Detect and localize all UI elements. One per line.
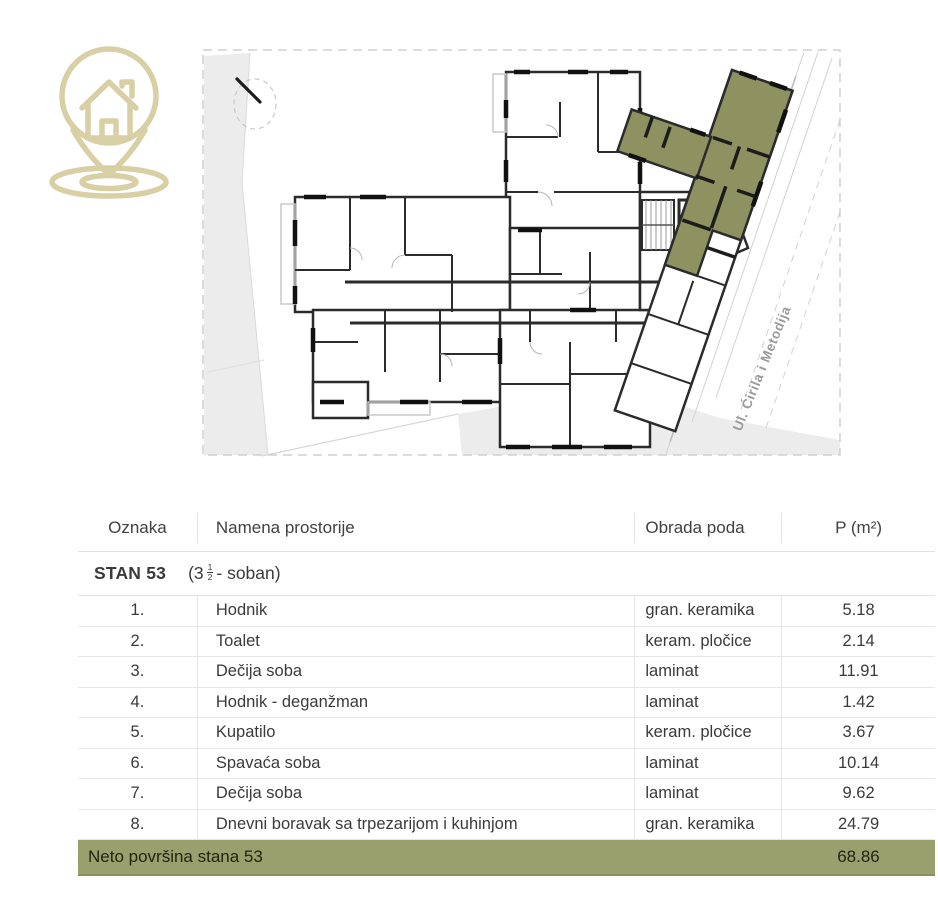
table-body: 1. Hodnik gran. keramika 5.18 2. Toalet … bbox=[78, 596, 935, 840]
staircase bbox=[642, 200, 674, 250]
room-name: Hodnik - deganžman bbox=[197, 688, 635, 718]
floor-plan: Ul. Ćirila i Metodija bbox=[200, 42, 845, 467]
row-number: 5. bbox=[78, 718, 197, 748]
room-table: Oznaka Namena prostorije Obrada poda P (… bbox=[78, 505, 935, 876]
table-row: 6. Spavaća soba laminat 10.14 bbox=[78, 749, 935, 780]
floor-finish: laminat bbox=[634, 779, 781, 809]
room-count-post: - soban) bbox=[216, 563, 280, 584]
header-oznaka: Oznaka bbox=[78, 513, 197, 543]
row-number: 4. bbox=[78, 688, 197, 718]
room-name: Dečija soba bbox=[197, 657, 635, 687]
row-number: 2. bbox=[78, 627, 197, 657]
room-area: 11.91 bbox=[781, 657, 935, 687]
room-name: Hodnik bbox=[197, 596, 635, 626]
fraction-denominator: 2 bbox=[207, 573, 214, 582]
room-area: 10.14 bbox=[781, 749, 935, 779]
table-row: 8. Dnevni boravak sa trpezarijom i kuhin… bbox=[78, 810, 935, 841]
room-name: Dnevni boravak sa trpezarijom i kuhinjom bbox=[197, 810, 635, 840]
floor-finish: laminat bbox=[634, 688, 781, 718]
row-number: 6. bbox=[78, 749, 197, 779]
floor-finish: laminat bbox=[634, 657, 781, 687]
table-row: 7. Dečija soba laminat 9.62 bbox=[78, 779, 935, 810]
floor-finish: gran. keramika bbox=[634, 810, 781, 840]
brand-logo bbox=[42, 34, 180, 206]
room-area: 1.42 bbox=[781, 688, 935, 718]
net-area-label: Neto površina stana 53 bbox=[78, 847, 782, 867]
room-name: Dečija soba bbox=[197, 779, 635, 809]
unit-title-row: STAN 53 (3 1 2 - soban) bbox=[78, 552, 935, 596]
header-obrada: Obrada poda bbox=[634, 513, 781, 543]
table-row: 3. Dečija soba laminat 11.91 bbox=[78, 657, 935, 688]
room-name: Toalet bbox=[197, 627, 635, 657]
room-area: 5.18 bbox=[781, 596, 935, 626]
floor-finish: keram. pločice bbox=[634, 627, 781, 657]
unit-room-count: (3 1 2 - soban) bbox=[188, 563, 281, 584]
row-number: 1. bbox=[78, 596, 197, 626]
floor-finish: gran. keramika bbox=[634, 596, 781, 626]
table-row: 4. Hodnik - deganžman laminat 1.42 bbox=[78, 688, 935, 719]
room-area: 24.79 bbox=[781, 810, 935, 840]
header-p-m2: P (m²) bbox=[781, 513, 935, 543]
street-label: Ul. Ćirila i Metodija bbox=[730, 304, 794, 433]
location-pin-house-icon bbox=[52, 49, 166, 196]
floor-finish: keram. pločice bbox=[634, 718, 781, 748]
row-number: 8. bbox=[78, 810, 197, 840]
table-row: 2. Toalet keram. pločice 2.14 bbox=[78, 627, 935, 658]
header-namena: Namena prostorije bbox=[197, 513, 635, 543]
table-row: 1. Hodnik gran. keramika 5.18 bbox=[78, 596, 935, 627]
net-area-value: 68.86 bbox=[782, 847, 935, 867]
floor-finish: laminat bbox=[634, 749, 781, 779]
room-area: 9.62 bbox=[781, 779, 935, 809]
room-name: Spavaća soba bbox=[197, 749, 635, 779]
row-number: 7. bbox=[78, 779, 197, 809]
table-row: 5. Kupatilo keram. pločice 3.67 bbox=[78, 718, 935, 749]
row-number: 3. bbox=[78, 657, 197, 687]
room-count-fraction: 1 2 bbox=[207, 563, 214, 582]
apartment-listing-page: Ul. Ćirila i Metodija bbox=[0, 0, 938, 900]
net-area-footer-row: Neto površina stana 53 68.86 bbox=[78, 840, 935, 876]
room-area: 3.67 bbox=[781, 718, 935, 748]
room-name: Kupatilo bbox=[197, 718, 635, 748]
room-count-pre: (3 bbox=[188, 563, 204, 584]
table-header-row: Oznaka Namena prostorije Obrada poda P (… bbox=[78, 505, 935, 552]
room-area: 2.14 bbox=[781, 627, 935, 657]
unit-name: STAN 53 bbox=[78, 563, 166, 584]
